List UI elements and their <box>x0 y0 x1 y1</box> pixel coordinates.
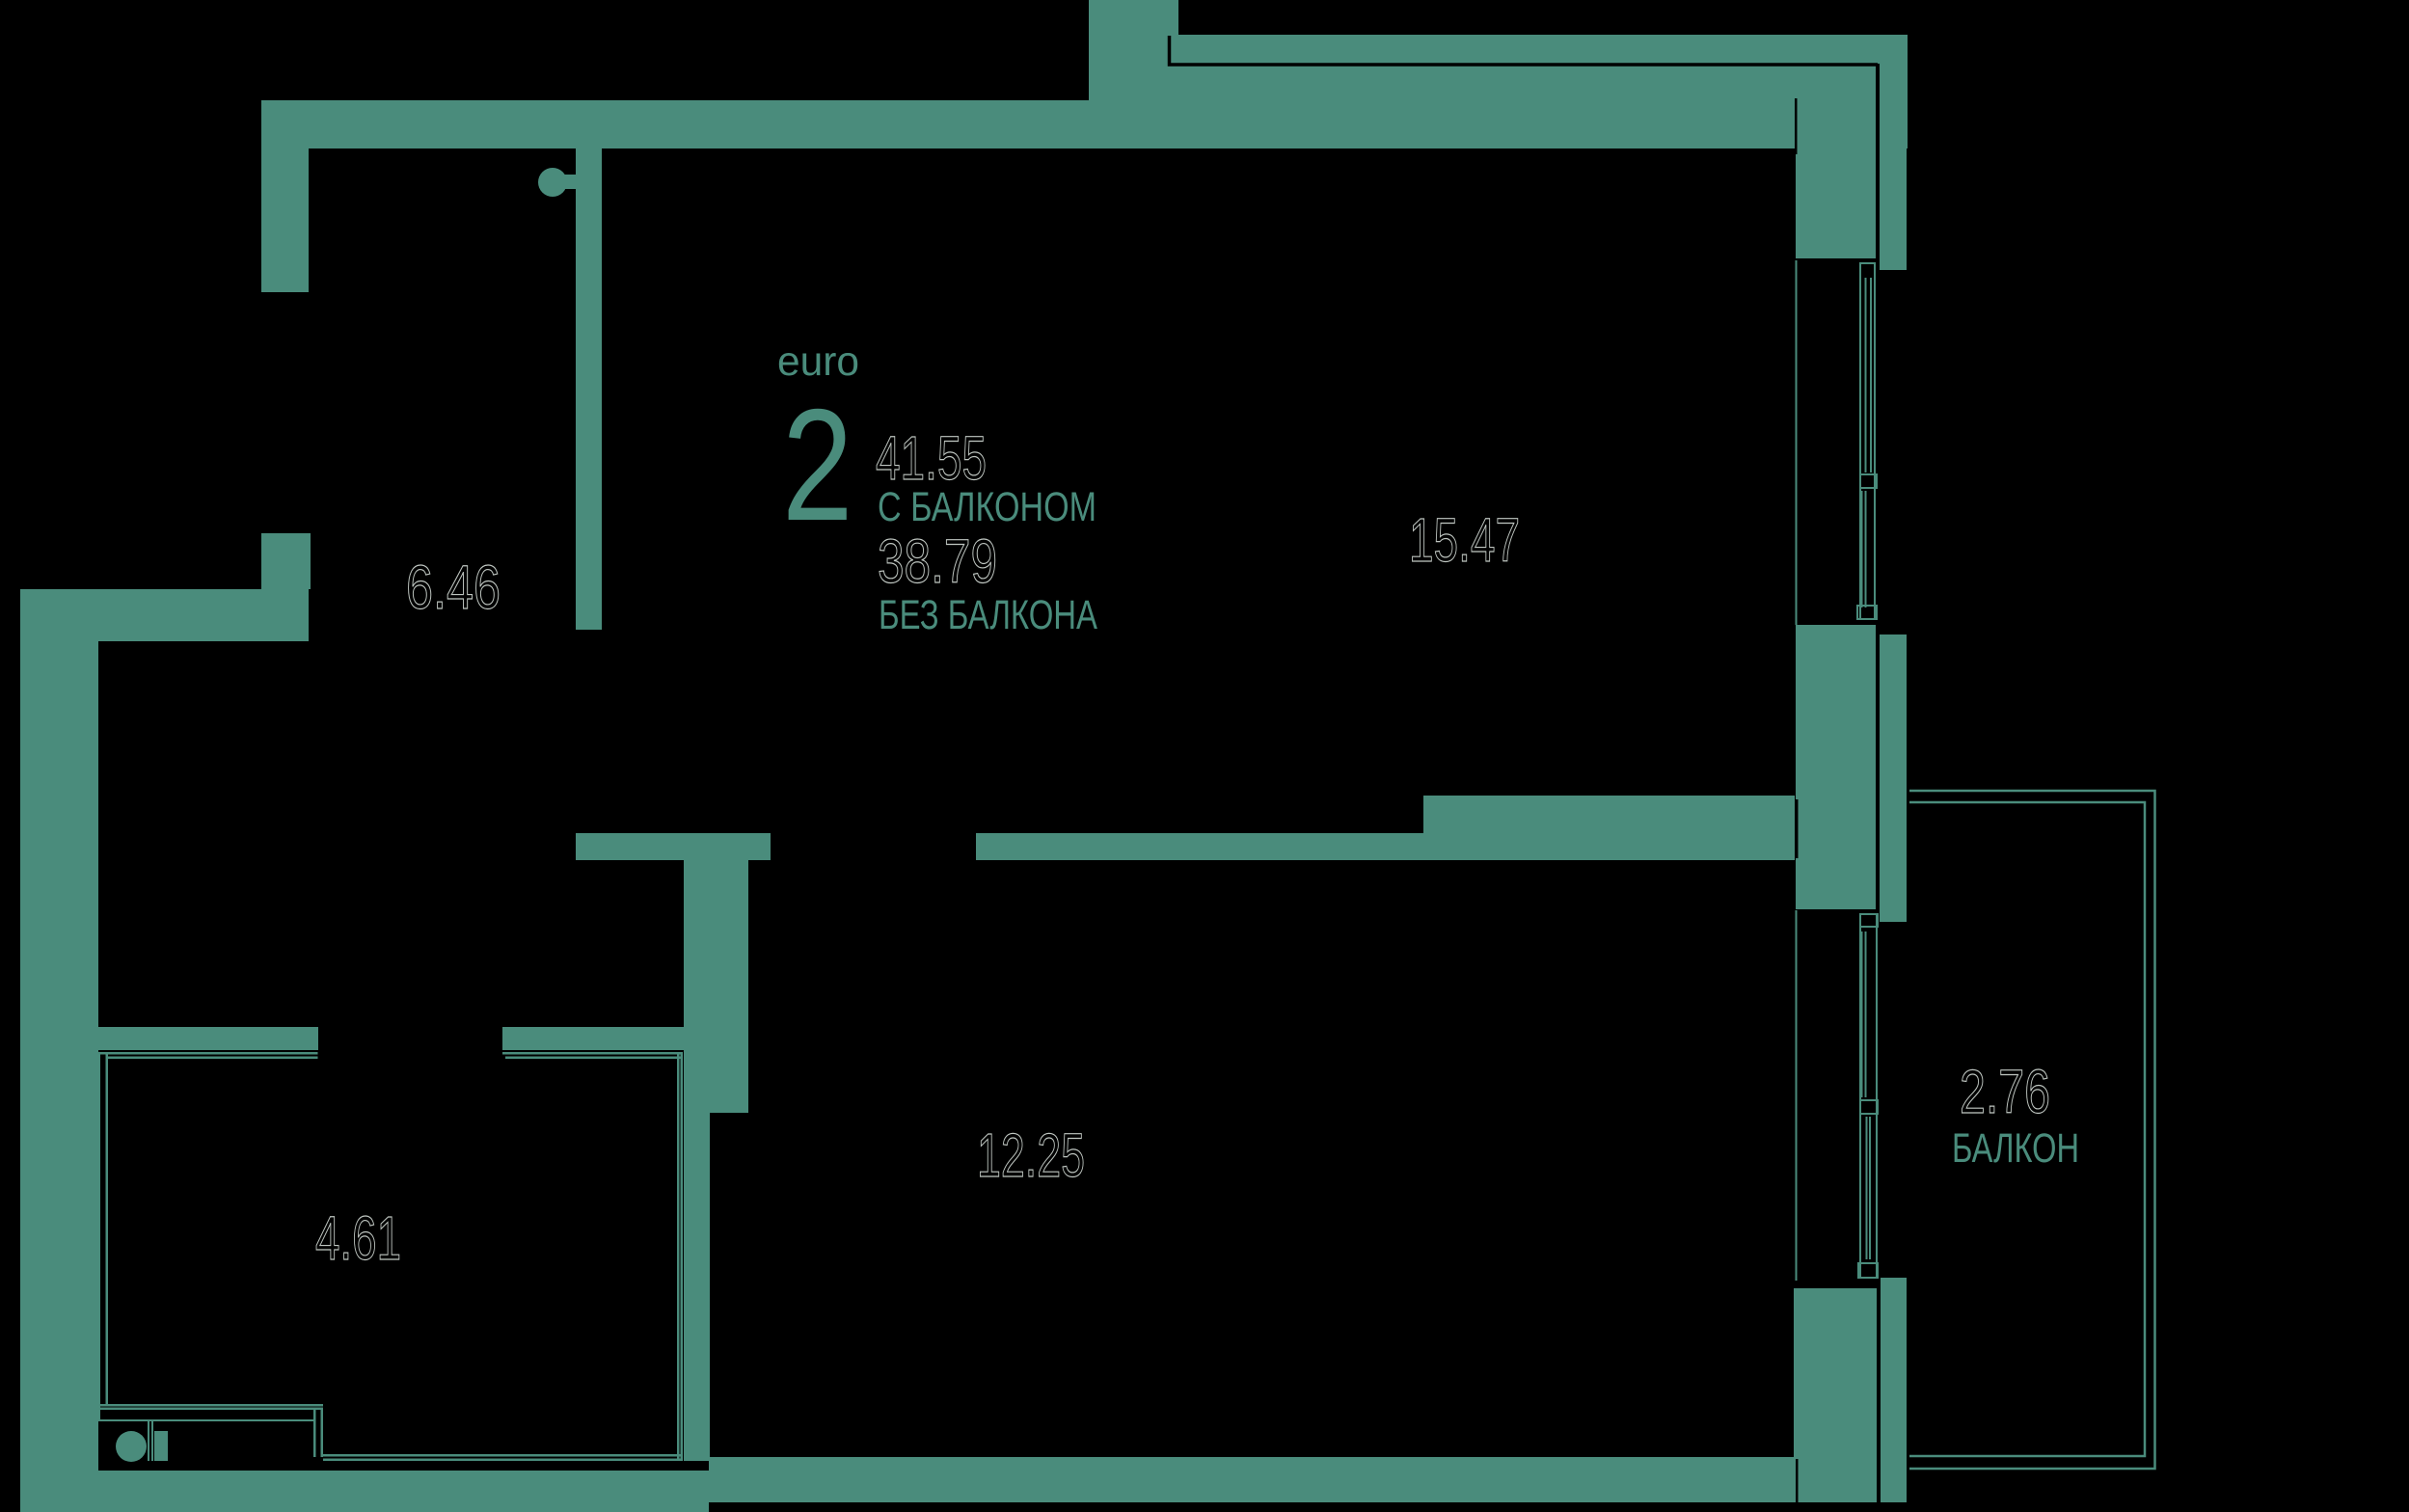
svg-text:2.76: 2.76 <box>1960 1057 2050 1126</box>
svg-text:6.46: 6.46 <box>406 553 501 622</box>
svg-text:БЕЗ БАЛКОНА: БЕЗ БАЛКОНА <box>879 592 1097 638</box>
svg-text:2: 2 <box>782 376 853 553</box>
svg-text:15.47: 15.47 <box>1409 505 1520 575</box>
svg-text:41.55: 41.55 <box>876 423 987 493</box>
svg-text:4.61: 4.61 <box>315 1203 401 1273</box>
svg-text:БАЛКОН: БАЛКОН <box>1952 1125 2079 1172</box>
svg-text:12.25: 12.25 <box>977 1120 1085 1190</box>
svg-text:38.79: 38.79 <box>878 526 997 596</box>
svg-text:С БАЛКОНОМ: С БАЛКОНОМ <box>878 484 1096 530</box>
